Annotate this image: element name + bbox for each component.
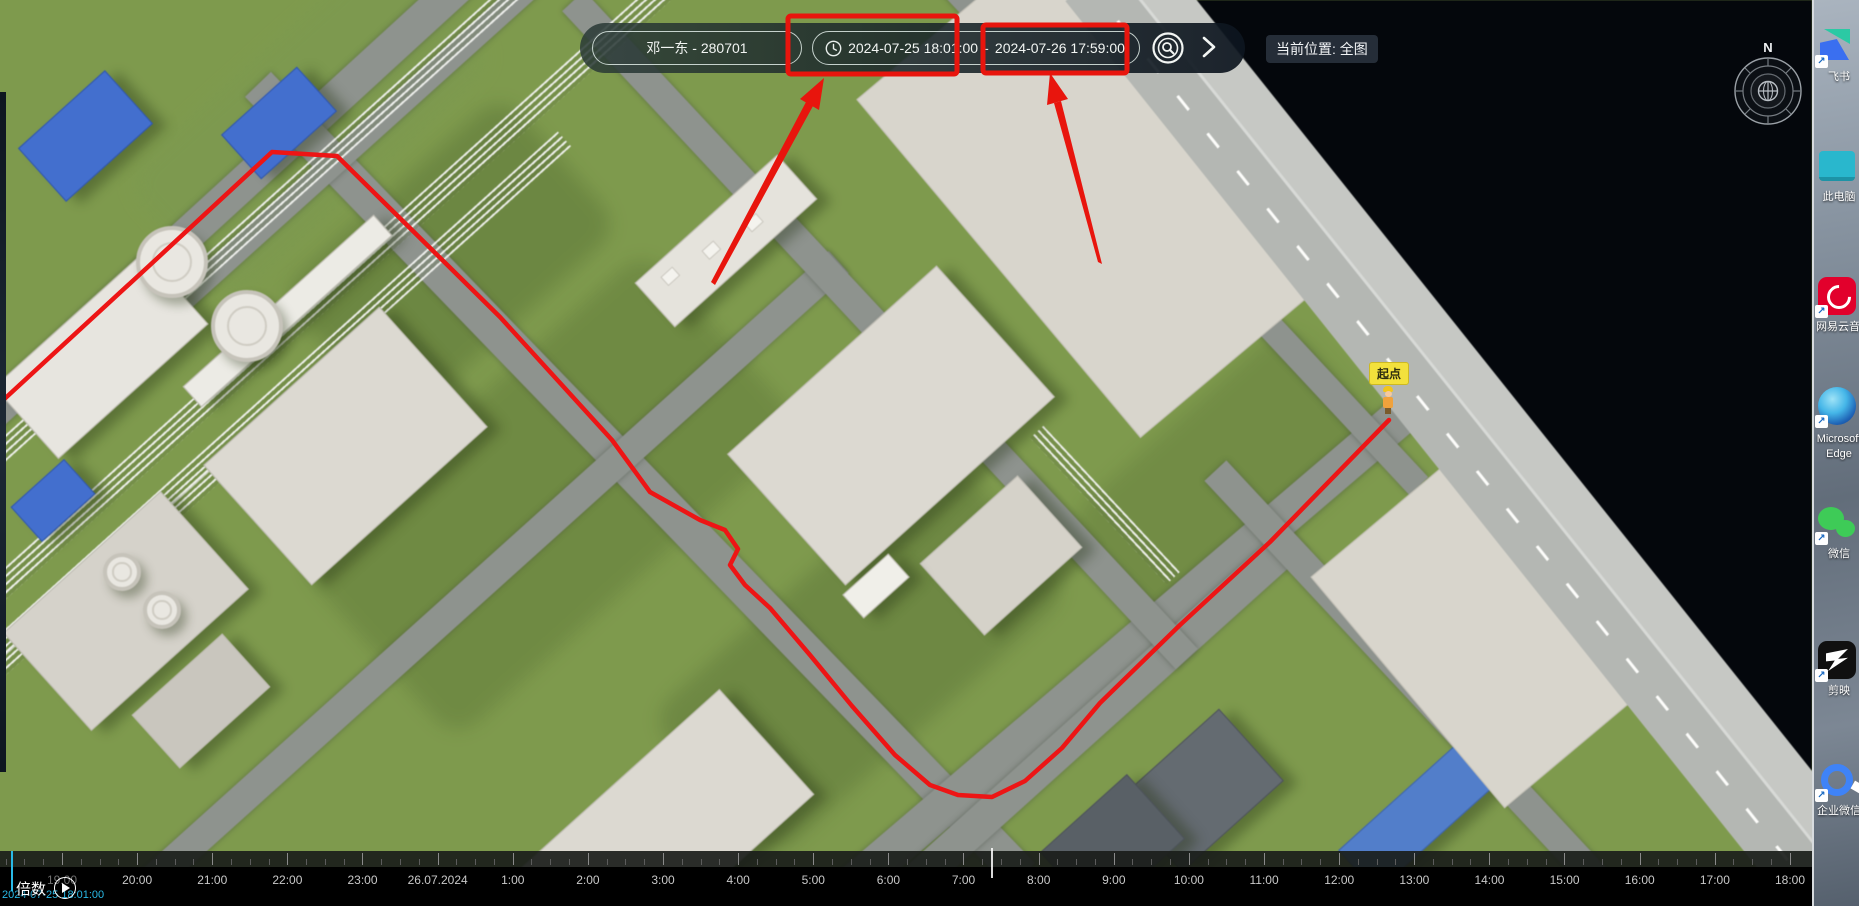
tick-mark	[1226, 859, 1227, 865]
start-point-label: 起点	[1369, 362, 1409, 385]
tick-mark	[1151, 859, 1152, 865]
tick-mark	[1658, 859, 1659, 865]
tick-mark	[1301, 859, 1302, 865]
building	[18, 70, 153, 202]
tick-mark	[813, 853, 814, 865]
current-location-text: 当前位置: 全图	[1276, 41, 1368, 57]
tick-mark	[1696, 859, 1697, 865]
clock-icon	[825, 40, 842, 57]
tick-mark	[43, 859, 44, 865]
this-pc-icon	[1819, 151, 1855, 181]
tick-mark	[118, 859, 119, 865]
desktop-icon-netease-music[interactable]: ↗ 网易云音乐	[1817, 276, 1859, 316]
tick-mark	[663, 853, 664, 865]
tick-mark	[1377, 859, 1378, 865]
desktop-icon-feishu[interactable]: ↗ 飞书	[1817, 26, 1859, 66]
person-selector[interactable]: 邓一东 - 280701	[592, 31, 802, 65]
desktop-icon-label: 剪映	[1816, 684, 1859, 699]
tick-mark	[212, 853, 213, 865]
tick-mark	[1414, 853, 1415, 865]
tick-mark	[1508, 859, 1509, 865]
playback-controls: 倍数	[16, 877, 76, 899]
timeline: 19:00 20:00 21:00 22:00 23:00 26.07.2024…	[0, 851, 1812, 906]
tick-mark	[306, 859, 307, 865]
timeline-hour-label: 10:00	[1174, 873, 1204, 887]
timeline-hour-label: 5:00	[802, 873, 825, 887]
tick-mark	[1395, 859, 1396, 865]
shortcut-arrow-icon: ↗	[1815, 305, 1828, 318]
tick-mark	[1358, 859, 1359, 865]
timeline-hour-label: 4:00	[726, 873, 749, 887]
tick-mark	[1621, 859, 1622, 865]
tick-mark	[419, 859, 420, 865]
tick-mark	[719, 859, 720, 865]
tick-mark	[531, 859, 532, 865]
map-view[interactable]: 起点	[0, 0, 1812, 906]
timeline-hour-label: 26.07.2024	[408, 873, 468, 887]
tick-mark	[888, 853, 889, 865]
tick-mark	[1057, 859, 1058, 865]
shortcut-arrow-icon: ↗	[1815, 669, 1828, 682]
timeline-hour-label: 1:00	[501, 873, 524, 887]
tick-mark	[81, 859, 82, 865]
tick-mark	[1020, 859, 1021, 865]
app-window: 起点 邓一东 - 280701 2024-07-25 18:01:00 - 20…	[0, 0, 1859, 906]
next-button[interactable]	[1192, 30, 1226, 66]
person-marker	[1381, 386, 1395, 416]
tick-mark	[193, 859, 194, 865]
tick-mark	[851, 859, 852, 865]
tick-mark	[738, 853, 739, 865]
datetime-start[interactable]: 2024-07-25 18:01:00	[846, 40, 980, 56]
locate-icon	[1150, 30, 1186, 66]
timeline-hour-label: 15:00	[1550, 873, 1580, 887]
timeline-hour-label: 7:00	[952, 873, 975, 887]
tick-mark	[926, 859, 927, 865]
timeline-hour-label: 16:00	[1625, 873, 1655, 887]
tick-mark	[137, 853, 138, 865]
viewport-left-edge	[0, 92, 6, 772]
desktop-icon-label: 微信	[1816, 547, 1859, 562]
person-selector-value: 邓一东 - 280701	[646, 38, 747, 58]
tick-mark	[776, 859, 777, 865]
compass-rose-icon	[1735, 58, 1801, 124]
timeline-hour-label: 22:00	[272, 873, 302, 887]
tick-mark	[1339, 853, 1340, 865]
tick-mark	[1546, 859, 1547, 865]
tick-mark	[1602, 859, 1603, 865]
tick-mark	[607, 859, 608, 865]
tick-mark	[362, 853, 363, 865]
storage-tank	[136, 226, 208, 298]
tick-mark	[832, 859, 833, 865]
desktop-icon-label: 企业微信	[1816, 804, 1859, 819]
tick-mark	[1039, 853, 1040, 865]
datetime-end[interactable]: 2024-07-26 17:59:00	[993, 40, 1127, 56]
tick-mark	[475, 859, 476, 865]
tick-mark	[24, 859, 25, 865]
map-terrain	[0, 0, 1812, 906]
tick-mark	[794, 859, 795, 865]
tick-mark	[287, 853, 288, 865]
tick-mark	[1752, 859, 1753, 865]
desktop-icon-wecom[interactable]: ↗ 企业微信	[1817, 760, 1859, 800]
tick-mark	[175, 859, 176, 865]
range-separator: -	[980, 40, 993, 56]
tick-mark	[513, 853, 514, 865]
locate-button[interactable]	[1150, 30, 1186, 66]
chevron-right-icon	[1199, 35, 1219, 59]
tick-mark	[1564, 853, 1565, 865]
timeline-hour-label: 8:00	[1027, 873, 1050, 887]
desktop-icon-this-pc[interactable]: 此电脑	[1817, 146, 1859, 181]
tick-mark	[1208, 859, 1209, 865]
tick-mark	[381, 859, 382, 865]
tick-mark	[1677, 859, 1678, 865]
tick-mark	[1320, 859, 1321, 865]
timeline-hour-label: 13:00	[1399, 873, 1429, 887]
tick-mark	[1433, 859, 1434, 865]
tick-mark	[569, 859, 570, 865]
timeline-hours: 19:00 20:00 21:00 22:00 23:00 26.07.2024…	[0, 867, 1812, 906]
tick-mark	[1264, 853, 1265, 865]
tick-mark	[1733, 859, 1734, 865]
tick-mark	[100, 859, 101, 865]
compass[interactable]: N	[1728, 38, 1808, 130]
storage-tank	[103, 553, 141, 591]
tick-mark	[269, 859, 270, 865]
tick-mark	[907, 859, 908, 865]
tick-mark	[1771, 859, 1772, 865]
tick-mark	[325, 859, 326, 865]
speed-label[interactable]: 倍数	[16, 878, 46, 899]
play-button[interactable]	[54, 877, 76, 899]
toolbar: 邓一东 - 280701 2024-07-25 18:01:00 - 2024-…	[580, 23, 1245, 73]
timeline-hour-label: 9:00	[1102, 873, 1125, 887]
tick-mark	[963, 853, 964, 865]
desktop-icon-label: 网易云音乐	[1816, 320, 1859, 335]
tick-mark	[682, 859, 683, 865]
tick-mark	[1076, 859, 1077, 865]
tick-mark	[550, 859, 551, 865]
tick-mark	[344, 859, 345, 865]
timeline-hour-label: 6:00	[877, 873, 900, 887]
tick-mark	[1489, 853, 1490, 865]
shortcut-arrow-icon: ↗	[1815, 415, 1828, 428]
storage-tank	[143, 591, 181, 629]
person-body	[1383, 397, 1393, 408]
shortcut-arrow-icon: ↗	[1815, 55, 1828, 68]
tick-mark	[494, 859, 495, 865]
tick-mark	[1283, 859, 1284, 865]
tick-mark	[982, 859, 983, 865]
tick-mark	[1189, 853, 1190, 865]
tick-mark	[625, 859, 626, 865]
tick-mark	[456, 859, 457, 865]
tick-mark	[250, 859, 251, 865]
tick-mark	[945, 859, 946, 865]
tick-mark	[1170, 859, 1171, 865]
tick-mark	[6, 859, 7, 865]
timeline-hour-label: 23:00	[348, 873, 378, 887]
timeline-hour-label: 11:00	[1250, 873, 1279, 887]
storage-tank	[211, 290, 283, 362]
tick-mark	[757, 859, 758, 865]
tick-mark	[1527, 859, 1528, 865]
desktop-icon-label: 飞书	[1816, 70, 1859, 85]
timeline-hour-label: 3:00	[651, 873, 674, 887]
tick-mark	[701, 859, 702, 865]
timeline-hour-label: 14:00	[1474, 873, 1504, 887]
tick-mark	[1132, 859, 1133, 865]
desktop-icon-edge[interactable]: ↗ Microsoft Edge	[1817, 386, 1859, 426]
tick-mark	[1715, 853, 1716, 865]
desktop-icon-wechat[interactable]: ↗ 微信	[1817, 503, 1859, 543]
datetime-range[interactable]: 2024-07-25 18:01:00 - 2024-07-26 17:59:0…	[812, 31, 1140, 65]
tick-mark	[1790, 853, 1791, 865]
timeline-hour-label: 18:00	[1775, 873, 1805, 887]
desktop-strip: ↗ 飞书 此电脑 ↗ 网易云音乐 ↗ Microsoft Edge ↗ 微信 ↗…	[1812, 0, 1859, 906]
timeline-hour-label: 20:00	[122, 873, 152, 887]
timeline-hour-label: 17:00	[1700, 873, 1730, 887]
tick-mark	[588, 853, 589, 865]
timeline-hour-label: 21:00	[197, 873, 227, 887]
tick-mark	[1114, 853, 1115, 865]
desktop-icon-label: Microsoft Edge	[1816, 432, 1859, 462]
shortcut-arrow-icon: ↗	[1815, 532, 1828, 545]
tick-mark	[870, 859, 871, 865]
tick-mark	[1583, 859, 1584, 865]
tick-mark	[644, 859, 645, 865]
timeline-ticks[interactable]	[0, 851, 1812, 867]
tick-mark	[156, 859, 157, 865]
tick-mark	[231, 859, 232, 865]
timeline-hour-label: 2:00	[576, 873, 599, 887]
tick-mark	[1640, 853, 1641, 865]
desktop-icon-jianying[interactable]: ↗ 剪映	[1817, 640, 1859, 680]
timeline-cursor[interactable]	[991, 848, 993, 878]
tick-mark	[1001, 859, 1002, 865]
desktop-icon-label: 此电脑	[1816, 190, 1859, 205]
tick-mark	[1470, 859, 1471, 865]
tick-mark	[1095, 859, 1096, 865]
current-location-badge: 当前位置: 全图	[1266, 35, 1378, 63]
person-legs	[1385, 408, 1391, 414]
shortcut-arrow-icon: ↗	[1815, 789, 1828, 802]
tick-mark	[438, 853, 439, 865]
timeline-hour-label: 12:00	[1324, 873, 1354, 887]
playhead[interactable]	[11, 851, 13, 891]
tick-mark	[1452, 859, 1453, 865]
tick-mark	[400, 859, 401, 865]
tick-mark	[1245, 859, 1246, 865]
north-label: N	[1763, 40, 1772, 55]
tick-mark	[62, 853, 63, 865]
